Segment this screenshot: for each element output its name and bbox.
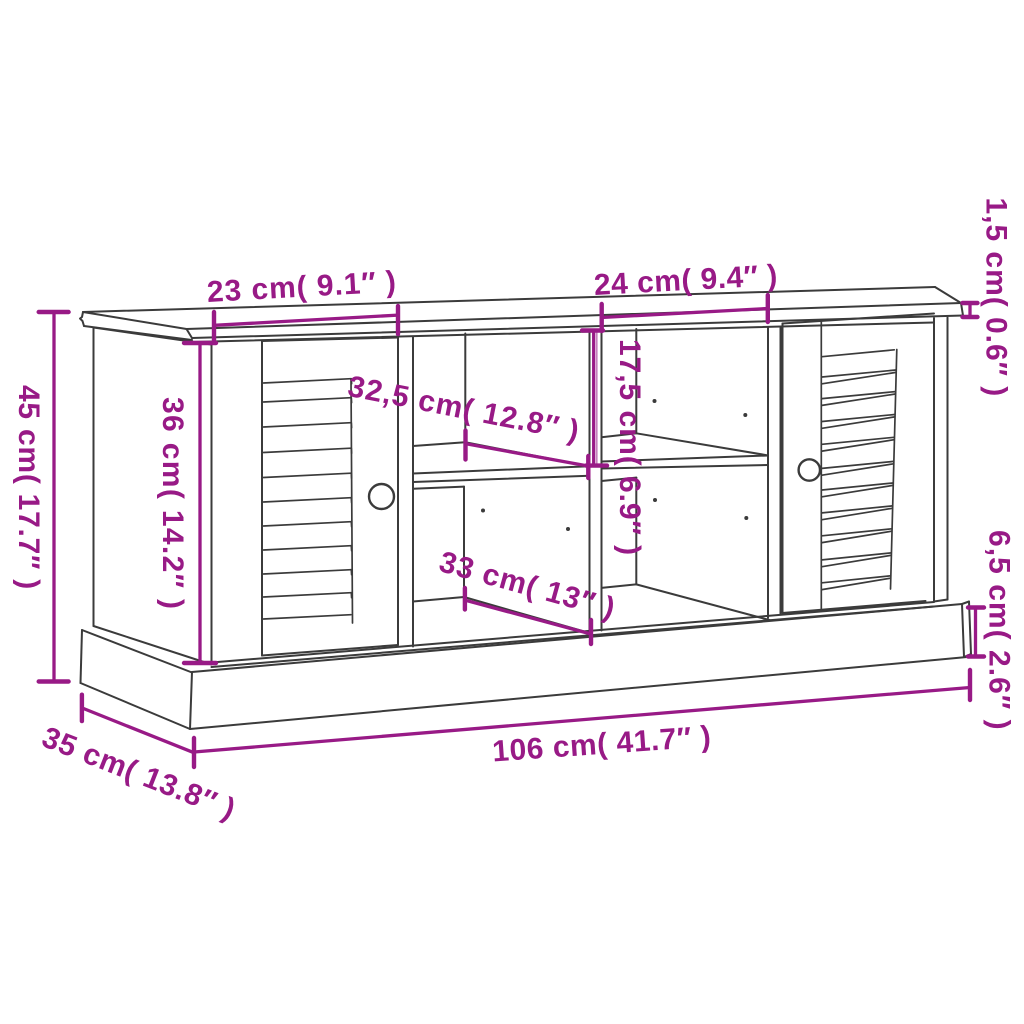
svg-text:17,5 cm( 6.9″ ): 17,5 cm( 6.9″ ) — [613, 339, 646, 556]
svg-text:36 cm( 14.2″ ): 36 cm( 14.2″ ) — [156, 397, 189, 610]
svg-text:45 cm( 17.7″ ): 45 cm( 17.7″ ) — [12, 385, 45, 590]
svg-text:1,5 cm( 0.6″ ): 1,5 cm( 0.6″ ) — [980, 198, 1013, 398]
svg-text:6,5 cm( 2.6″ ): 6,5 cm( 2.6″ ) — [983, 530, 1016, 731]
